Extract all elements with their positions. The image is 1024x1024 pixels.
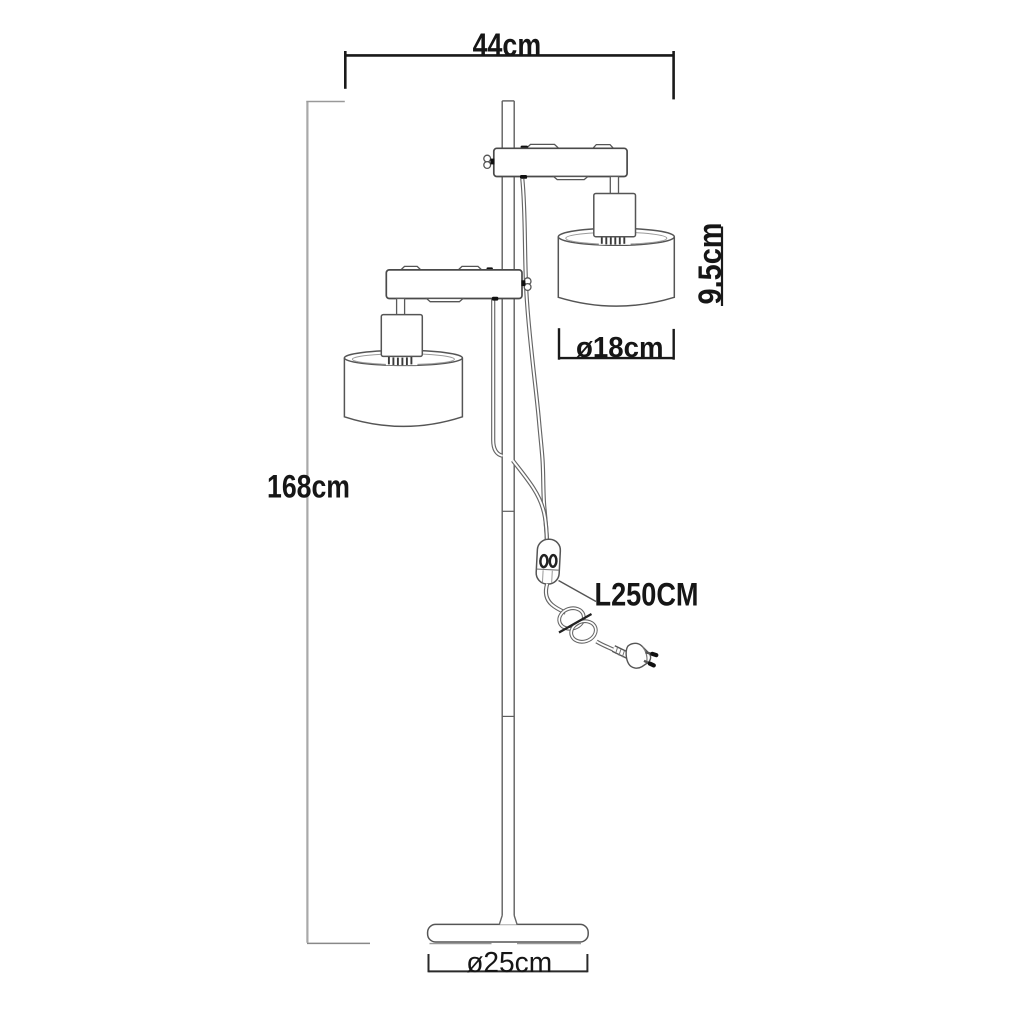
svg-text:9.5cm: 9.5cm bbox=[692, 223, 728, 305]
svg-text:44cm: 44cm bbox=[473, 27, 542, 63]
svg-text:L250CM: L250CM bbox=[595, 576, 699, 612]
svg-text:ø18cm: ø18cm bbox=[576, 332, 664, 364]
svg-text:168cm: 168cm bbox=[267, 468, 350, 504]
svg-text:ø25cm: ø25cm bbox=[466, 947, 552, 979]
